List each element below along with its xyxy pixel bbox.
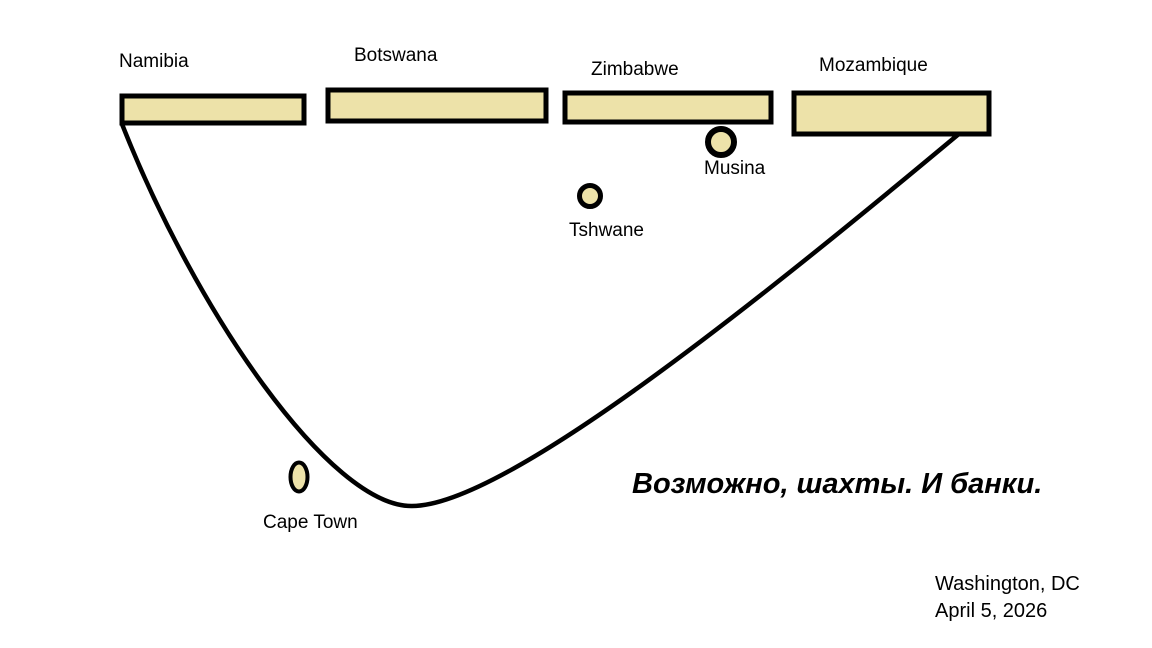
footer-caption: Washington, DC April 5, 2026 <box>935 571 1080 625</box>
label-musina: Musina <box>704 158 765 180</box>
sketch-map-canvas: Namibia Botswana Zimbabwe Mozambique Mus… <box>0 0 1152 648</box>
city-marker-musina <box>708 129 734 155</box>
coastline-curve <box>122 124 960 506</box>
annotation-text: Возможно, шахты. И банки. <box>632 468 1042 501</box>
city-marker-tshwane <box>580 186 601 207</box>
label-tshwane: Tshwane <box>569 220 644 242</box>
footer-location: Washington, DC <box>935 571 1080 598</box>
country-bar-namibia <box>122 96 304 123</box>
label-botswana: Botswana <box>354 45 437 67</box>
footer-date: April 5, 2026 <box>935 598 1080 625</box>
label-namibia: Namibia <box>119 51 189 73</box>
label-cape-town: Cape Town <box>263 512 358 534</box>
label-zimbabwe: Zimbabwe <box>591 59 679 81</box>
country-bar-zimbabwe <box>565 93 771 122</box>
label-mozambique: Mozambique <box>819 55 928 77</box>
country-bar-botswana <box>328 90 546 121</box>
country-bar-mozambique <box>794 93 989 134</box>
city-marker-cape-town <box>291 463 308 492</box>
map-drawing <box>0 0 1152 648</box>
